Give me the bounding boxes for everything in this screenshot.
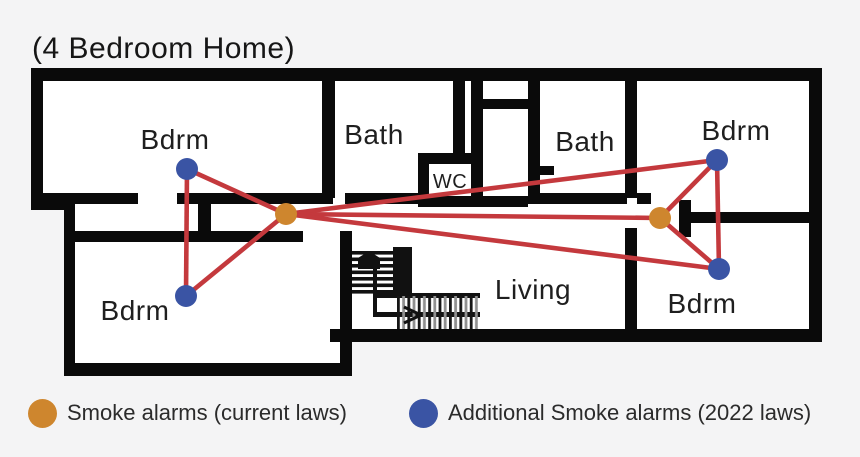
wall-hall-bottom <box>64 231 303 242</box>
wall-outer-bottom-right <box>330 329 822 342</box>
wall-wc-top <box>418 153 482 164</box>
legend-label-additional: Additional Smoke alarms (2022 laws) <box>448 400 811 426</box>
wall-bedroom-br-left <box>625 228 637 342</box>
room-label-bath-left: Bath <box>344 119 404 150</box>
legend: Smoke alarms (current laws) Additional S… <box>0 398 860 430</box>
room-label-wc: WC <box>433 171 467 193</box>
legend-label-current: Smoke alarms (current laws) <box>67 400 347 426</box>
additional-alarm-dot-bdrm-tr <box>706 149 728 171</box>
current-alarm-dot-hall-right <box>649 207 671 229</box>
wall-bedroom-bl-bottom <box>64 363 352 376</box>
room-label-bdrm-bl: Bdrm <box>101 295 170 326</box>
room-label-living: Living <box>495 274 571 305</box>
stair-tread-hatch <box>397 296 478 329</box>
legend-item-current-alarms: Smoke alarms (current laws) <box>28 398 347 428</box>
coverage-line <box>717 160 719 269</box>
room-label-bdrm-br: Bdrm <box>668 288 737 319</box>
wall-bath-bedroom-tr-divider <box>625 81 637 198</box>
wall-bedroom-bl-left <box>64 198 75 376</box>
floor-plan-figure: (4 Bedroom Home) <box>0 0 860 457</box>
wall-bedroom-tr-br-divider <box>691 212 809 223</box>
room-label-bdrm-tl: Bdrm <box>141 124 210 155</box>
coverage-line <box>186 169 187 296</box>
wall-outer-right <box>809 68 822 342</box>
wall-shaft-a <box>453 81 465 153</box>
wall-bath-right-door-jamb <box>540 166 554 175</box>
wall-outer-top <box>31 68 822 81</box>
wall-divider-stub <box>679 200 691 237</box>
legend-item-additional-alarms: Additional Smoke alarms (2022 laws) <box>409 398 811 428</box>
wall-living-left <box>340 231 352 376</box>
additional-alarm-dot-bdrm-tl <box>176 158 198 180</box>
additional-alarm-legend-dot-icon <box>409 399 438 428</box>
floor-plan-canvas: Bdrm Bath WC Bath Bdrm Bdrm Living Bdrm <box>0 0 860 457</box>
current-alarm-dot-hall-left <box>275 203 297 225</box>
wall-bath-left-west <box>322 81 335 198</box>
wall-bedroom-tr-bottom-stub <box>637 193 651 204</box>
additional-alarm-dot-bdrm-br <box>708 258 730 280</box>
wall-shaft-notch <box>483 99 528 109</box>
wall-bedroom-tl-bottom-left <box>43 193 138 204</box>
wall-bath-right-bottom <box>528 193 627 204</box>
stair-center-column <box>393 247 412 296</box>
additional-alarm-dot-bdrm-bl <box>175 285 197 307</box>
room-label-bath-right: Bath <box>555 126 615 157</box>
wall-outer-left-upper <box>31 68 43 210</box>
room-label-bdrm-tr: Bdrm <box>702 115 771 146</box>
current-alarm-legend-dot-icon <box>28 399 57 428</box>
